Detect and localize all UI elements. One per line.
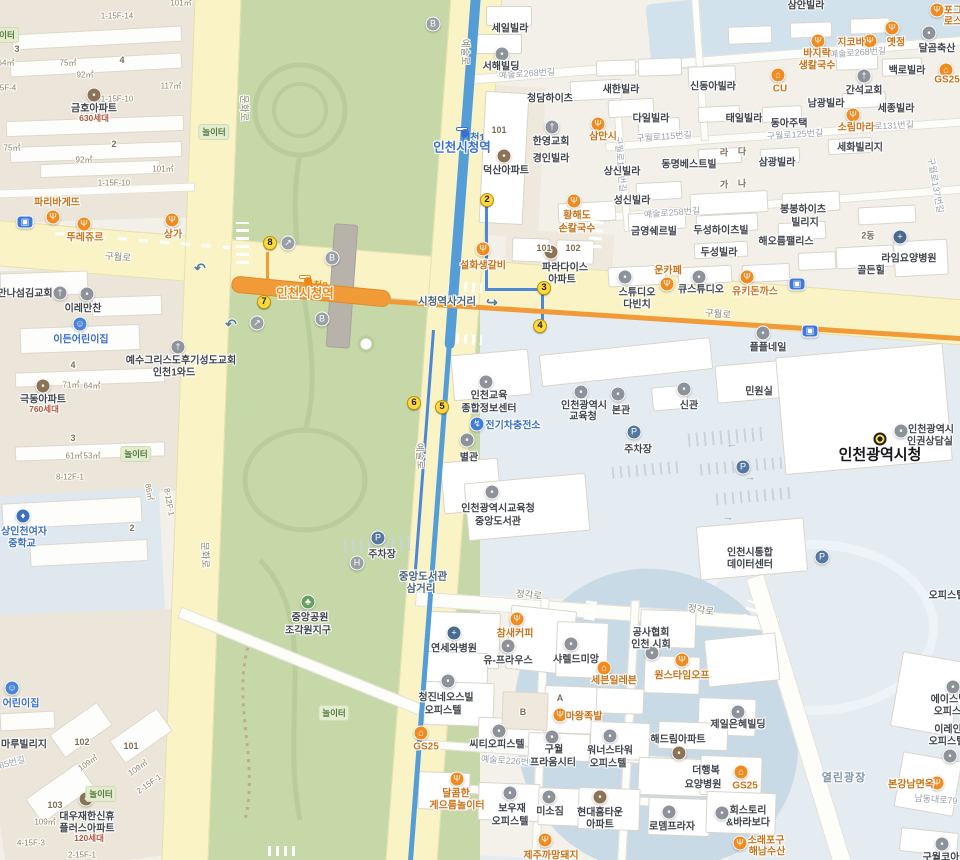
elevator-icon: B [325,251,340,266]
block-num: 4 [70,360,75,370]
elevator-icon: B [426,17,441,32]
poi-hanyoung-church[interactable]: 한영교회 [533,133,570,148]
block-num: 3 [14,44,19,54]
poi-cheongjin2[interactable]: 오피스텔 [425,702,462,717]
poi-qstudio[interactable]: 큐스튜디오 [678,281,724,296]
poi-haeoreum[interactable]: 해오름팰리스 [758,233,813,248]
poi-deohaengbok2[interactable]: 요양병원 [685,776,722,791]
building [858,204,917,225]
building-icon[interactable]: ▪ [564,637,579,652]
block-code: 2-15F-1 [68,851,96,860]
block-2dong: 2동 [861,229,874,242]
poi-irein2[interactable]: 오피스텔 [929,733,960,748]
line1-station-badge[interactable]: 인천1 [456,127,468,131]
poi-lds-ward[interactable]: 인천1와드 [153,364,195,379]
poi-jeil-bldg[interactable]: 제일은혜빌딩 [710,716,765,731]
store-icon[interactable]: ⌂ [734,765,749,780]
lane-arrow-icon: ← [727,440,738,451]
poi-gs25-3[interactable]: GS25 [413,742,439,753]
poi-seven-eleven[interactable]: 세븐일레븐 [591,672,637,687]
block-B: B [520,707,527,717]
poi-gongsa2[interactable]: 인천 시회 [631,636,671,651]
road-guwol-ro: 구월로 [704,305,731,321]
poi-sindonga-villa[interactable]: 신동아빌라 [690,78,736,93]
station-incheon-cityhall-line2[interactable]: 인천시청역 [276,283,334,302]
poi-saehan-villa[interactable]: 새한빌라 [603,81,640,96]
building [596,59,637,76]
poi-plpl-nail[interactable]: 플플네일 [750,339,787,354]
bus-stop-icon[interactable]: ▣ [802,325,819,338]
uturn-icon: ↶ [194,261,206,275]
building-icon[interactable]: ▪ [503,786,518,801]
poi-bon-gangnam[interactable]: 본강남면옥 [888,776,934,791]
library-icon[interactable]: ▪ [485,485,500,500]
escalator-icon: ↗ [250,316,265,331]
block-num: 3 [70,433,75,443]
block-num: 2 [129,523,134,533]
building-icon[interactable]: ▪ [922,26,937,41]
poi-misojim[interactable]: 미소짐 [536,803,564,818]
poi-namgwang-villa[interactable]: 남광빌라 [808,95,845,110]
parking-icon[interactable]: P [815,550,830,565]
poi-sangincheon-girls2[interactable]: 중학교 [8,535,36,550]
poi-charelle[interactable]: 샤렐드미앙 [553,651,599,666]
bus-stop-icon[interactable]: ▣ [17,216,34,229]
poi-geumyoung[interactable]: 금영쉐르빌 [631,223,677,238]
poi-mawang-jokbal[interactable]: 마왕족발 [566,708,603,723]
building [0,711,55,732]
poi-goldenhill[interactable]: 골든힐 [857,262,885,277]
block-code: 1-15F-14 [101,12,133,21]
playground: 이터 [0,27,19,43]
playground: 놀이터 [120,446,151,462]
road-guwol-137: 구월로137번길 [925,156,948,214]
escalator-icon: ↗ [281,236,296,251]
map-canvas[interactable]: 인천1 인천시청역 인천2 인천시청역 1-15F-14101㎡3464㎡75㎡… [0,0,960,860]
block-code: 1-15F-10 [101,95,133,104]
building [728,25,773,45]
store-icon[interactable]: ⌂ [414,726,429,741]
road-yesul-258: 예술로258번길 [643,204,700,221]
block-ga: 가 [720,178,728,191]
poi-bajirak2[interactable]: 생칼국수 [799,57,836,72]
poi-dongmyeong[interactable]: 동명베스트빌 [661,156,716,171]
elevator-icon: B [315,312,330,327]
poi-ace2[interactable]: 오피스텔 [934,703,960,718]
poi-manna-church[interactable]: 만나섬김교회 [0,285,53,300]
poi-u-fraus[interactable]: 유-프라우스 [483,652,532,667]
lane-arrow-icon: → [723,513,734,524]
poi-yonsei-hospital[interactable]: 연세와병원 [431,640,477,655]
school-icon[interactable]: ♦ [16,509,31,524]
poi-hyundai-hometown2[interactable]: 아파트 [586,816,614,831]
poi-ganseok-church[interactable]: 간석교회 [846,82,883,97]
building [596,687,645,715]
poi-gs25-2[interactable]: GS25 [732,781,758,792]
poi-cu[interactable]: CU [773,84,787,95]
building [92,295,163,317]
unit-size: 101㎡ [152,164,173,175]
block-na: 나 [738,177,746,190]
poi-data-center2[interactable]: 데이터센터 [727,556,773,571]
poi-maru-village[interactable]: 마루빌리지 [1,736,47,751]
poi-sangga[interactable]: 상가 [164,226,182,241]
unit-size: 64㎡ [0,58,14,69]
poi-taeil-villa[interactable]: 태일빌라 [726,110,763,125]
poi-lime-hospital[interactable]: 라임요양병원 [881,250,936,265]
poi-seil-villa[interactable]: 세일빌라 [492,20,529,35]
poi-cheongdam-heights[interactable]: 청담하이츠 [527,90,573,105]
subway-exit-5[interactable]: 5 [435,400,449,414]
road-guwol-131: 로131번길 [874,117,914,132]
poi-byeolgwan[interactable]: 별관 [460,449,478,464]
unit-size: 101㎡ [170,0,191,9]
poi-central-library2[interactable]: 중앙도서관 [475,513,521,528]
building-icon[interactable]: ▪ [618,270,633,285]
poi-baekro-villa[interactable]: 백로빌라 [889,62,926,77]
hospital-icon[interactable]: + [893,230,908,245]
subway-exit-2[interactable]: 2 [480,193,494,207]
crosswalk [268,846,300,856]
unit-size: 75㎡ [4,143,21,154]
bus-stop-icon[interactable]: ▣ [789,278,806,291]
poi-bowoojae2[interactable]: 오피스텔 [492,813,529,828]
poi-edu-office2[interactable]: 교육청 [569,408,597,423]
road-jeonggak-ro: 정각로 [515,586,543,603]
subway-exit-8[interactable]: 8 [263,236,277,250]
cafe-icon[interactable]: Ψ [660,277,675,292]
poi-sorim-mara[interactable]: 소림마라 [838,119,875,134]
store-icon[interactable]: ⌂ [771,68,786,83]
block-num: 101 [491,125,506,135]
building-icon[interactable]: ▪ [441,674,456,689]
poi-samgwang-villa[interactable]: 삼광빌라 [759,154,796,169]
inter-jungang-library2: 삼거리 [407,581,436,596]
block-code: 8-12F-1 [162,487,176,516]
poi-minwonsil[interactable]: 민원실 [745,383,773,398]
poi-duseong-villa[interactable]: 두성빌라 [701,244,738,259]
apartment-icon[interactable]: ▪ [593,790,608,805]
unit-size: 92㎡ [76,155,93,166]
heliport-icon: H [350,556,365,571]
apt-geukdong-units: 760세대 [29,403,59,415]
parking-icon[interactable]: P [627,425,642,440]
apt-daewoo-units: 120세대 [74,832,104,844]
poi-iremanchan[interactable]: 이레만찬 [65,300,102,315]
cafe-icon[interactable]: Ψ [675,653,690,668]
road-yesul-ro: 예술로 [459,39,473,65]
poi-hwanghaedo2[interactable]: 손칼국수 [559,220,596,235]
poi-saman-villa[interactable]: 삼안빌라 [788,0,825,12]
block-num: 2 [111,139,116,149]
poi-daycare[interactable]: 어린이집 [3,695,40,710]
unit-size: 109㎡ [34,817,55,828]
block-A: A [557,693,564,703]
inter-cityhall: 시청역사거리 [418,294,476,309]
poi-singwan[interactable]: 신관 [680,397,698,412]
building [704,632,781,687]
daycare-icon[interactable]: ☺ [73,317,88,332]
block-code: 4-15F-3 [17,839,45,848]
poi-officetel-edge[interactable]: 오피스텔 [929,587,960,602]
poi-sangsin-villa[interactable]: 상신빌라 [604,163,641,178]
block-num: 4 [119,55,124,65]
block-num: 101 [123,741,138,751]
apartment-icon[interactable]: ▪ [672,746,687,761]
lane-arrow-icon: → [745,473,756,484]
poi-praum-city[interactable]: 프라움시티 [530,754,576,769]
turn-arrow-icon: ↪ [486,295,498,309]
poi-gyeongin-villa[interactable]: 경인빌라 [533,150,570,165]
playground: 놀이터 [198,124,229,140]
unit-size: 92㎡ [77,70,94,81]
station-incheon-cityhall-line1[interactable]: 인천시청역 [433,137,491,156]
poi-paris-baguette[interactable]: 파리바게뜨 [34,194,80,209]
restaurant-icon[interactable]: Ψ [930,3,945,18]
poi-dalgom[interactable]: 달곰축산 [919,40,956,55]
poi-soraepogu2[interactable]: 해남수산 [749,843,786,858]
crosswalk [236,222,249,264]
subway-exit-7[interactable]: 7 [257,295,271,309]
poi-rodem-plaza[interactable]: 로뎀프라자 [649,818,695,833]
block-num: 101 [536,243,551,253]
poi-city-officetel[interactable]: 씨티오피스텔 [469,736,524,751]
parking-icon[interactable]: P [371,531,386,546]
poi-chamsae-coffee[interactable]: 참새커피 [497,625,534,640]
building-icon[interactable]: ▪ [677,382,692,397]
uturn-icon: ↶ [225,317,237,331]
poi-wonner-tower2[interactable]: 오피스텔 [590,755,627,770]
poi-seohae-bldg[interactable]: 서해빌딩 [483,58,520,73]
poi-duseong-heights[interactable]: 두성하이츠빌 [693,222,748,237]
building [798,251,837,271]
block-num: 102 [74,737,89,747]
block-num: 102 [565,243,580,253]
unit-size: 117㎡ [161,81,182,92]
unit-size: 75㎡ [60,58,77,69]
poi-seolhwa[interactable]: 설화생갈비 [460,257,506,272]
poi-studio-davinci2[interactable]: 다빈치 [623,296,651,311]
poi-ev-charger[interactable]: 전기차충전소 [485,417,540,432]
poi-guwol-core[interactable]: 구월코아 [923,849,960,860]
poi-donga-jutaek[interactable]: 동아주택 [771,115,808,130]
building-icon[interactable]: ▪ [611,387,626,402]
building-icon[interactable]: ▪ [460,433,475,448]
playground: 놀이터 [85,786,116,802]
poi-bongwan[interactable]: 본관 [612,402,630,417]
road-yesul-ro: 예술로 [413,443,428,470]
poi-onestime[interactable]: 원스타임오프 [654,667,709,682]
poi-yuki-donkatsu[interactable]: 유키돈까스 [732,283,778,298]
road-guwol-ro: 구월로 [104,248,131,264]
block-code: 5F-4 [0,84,16,93]
building [638,57,683,77]
poi-dail-villa[interactable]: 다일빌라 [633,110,670,125]
church-icon[interactable]: † [53,286,68,301]
block-code: 8-12F-1 [56,473,84,482]
poi-bongbong2[interactable]: 빌리지 [791,214,819,229]
subway-exit-4[interactable]: 4 [533,319,547,333]
poi-seongsin-villa[interactable]: 성신빌라 [614,192,651,207]
poi-parking-lot[interactable]: 주차장 [624,441,652,456]
building-icon[interactable]: ▪ [943,749,958,764]
poi-jeju-pig[interactable]: 제주까망돼지 [523,847,578,860]
unit-size: 64㎡ [84,381,101,392]
poi-gs25[interactable]: GS25 [934,75,960,86]
route-line [486,288,544,291]
poi-tous-les-jours[interactable]: 뚜레쥬르 [67,229,104,244]
restaurant-icon[interactable]: Ψ [733,836,748,851]
park-tree-icon[interactable]: ♣ [301,595,316,610]
poi-pog2[interactable]: 로스 [944,13,960,28]
apt-deoksan[interactable]: 덕산아파트 [483,162,529,177]
poi-parking-lot[interactable]: 주차장 [368,546,396,561]
block-code: 1-15F-10 [98,179,130,188]
road-munhwa-ro: 문화로 [199,542,214,569]
unit-size: 71㎡ [63,380,80,391]
poi-haedrim-apt[interactable]: 해드림아파트 [650,731,705,746]
apt-paradise2[interactable]: 아파트 [548,271,576,286]
block-ra: 라 [720,146,728,159]
park-jungang2[interactable]: 조각원지구 [285,622,331,637]
restaurant-icon[interactable]: Ψ [476,242,491,257]
line2-station-badge[interactable]: 인천2 [299,275,311,279]
poi-eden-daycare[interactable]: 이든어린이집 [53,331,108,346]
subway-exit-6[interactable]: 6 [407,396,421,410]
unit-size: 61㎡ [66,451,83,462]
poi-uncafe[interactable]: 운카페 [654,262,682,277]
poi-human-rights2[interactable]: 인권상담실 [907,433,953,448]
road-munhwa-ro: 문화로 [238,95,252,121]
poi-dalkomhan2[interactable]: 게으름놀이터 [429,797,484,812]
poi-hoestory2[interactable]: &바라보다 [726,814,770,829]
poi-yetjeong[interactable]: 옛정 [887,34,905,49]
poi-sehwa-village[interactable]: 세화빌리지 [837,139,883,154]
poi-sejong-villa[interactable]: 세종빌라 [878,100,915,115]
bakery-icon[interactable]: Ψ [46,210,61,225]
playground: 놀이터 [318,705,349,721]
restaurant-icon[interactable]: Ψ [538,833,553,848]
poi-edu-center2[interactable]: 종합정보센터 [461,400,516,415]
apt-kumho-units: 630세대 [79,112,109,124]
daycare-icon[interactable]: ☺ [5,681,20,696]
poi-sammansi[interactable]: 삼만시 [589,128,617,143]
poi-open-plaza: 열린광장 [822,769,866,785]
hospital-icon[interactable]: + [447,626,462,641]
poi-deohaengbok[interactable]: 더행복 [692,762,720,777]
block-da: 다 [738,145,746,158]
poi-jikoba[interactable]: 지코바 [837,34,865,49]
unit-size: 53㎡ [84,451,101,462]
ev-charger-icon[interactable]: ↯ [470,417,485,432]
